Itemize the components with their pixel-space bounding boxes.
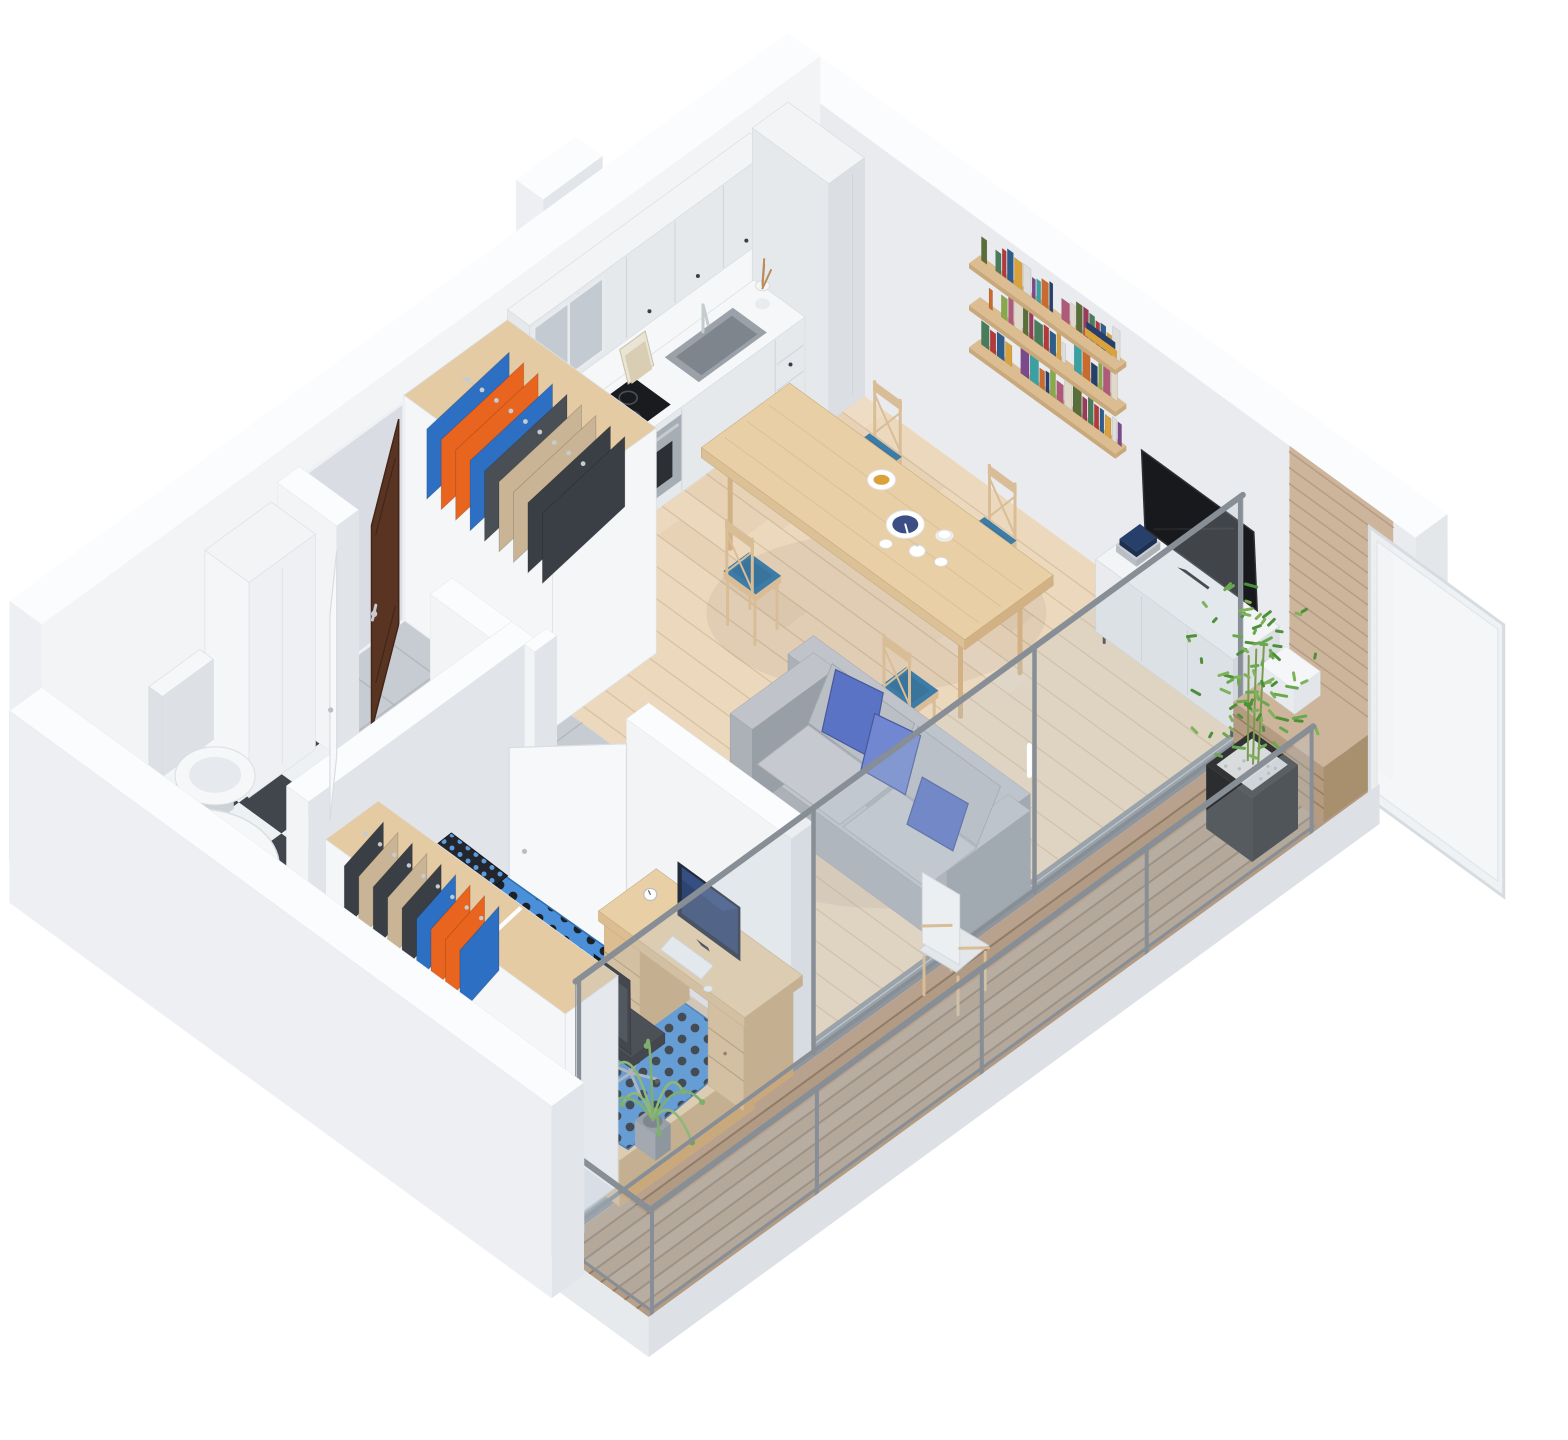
apartment-render-stage	[0, 0, 1568, 1440]
apartment-3d-floorplan	[0, 0, 1568, 1440]
